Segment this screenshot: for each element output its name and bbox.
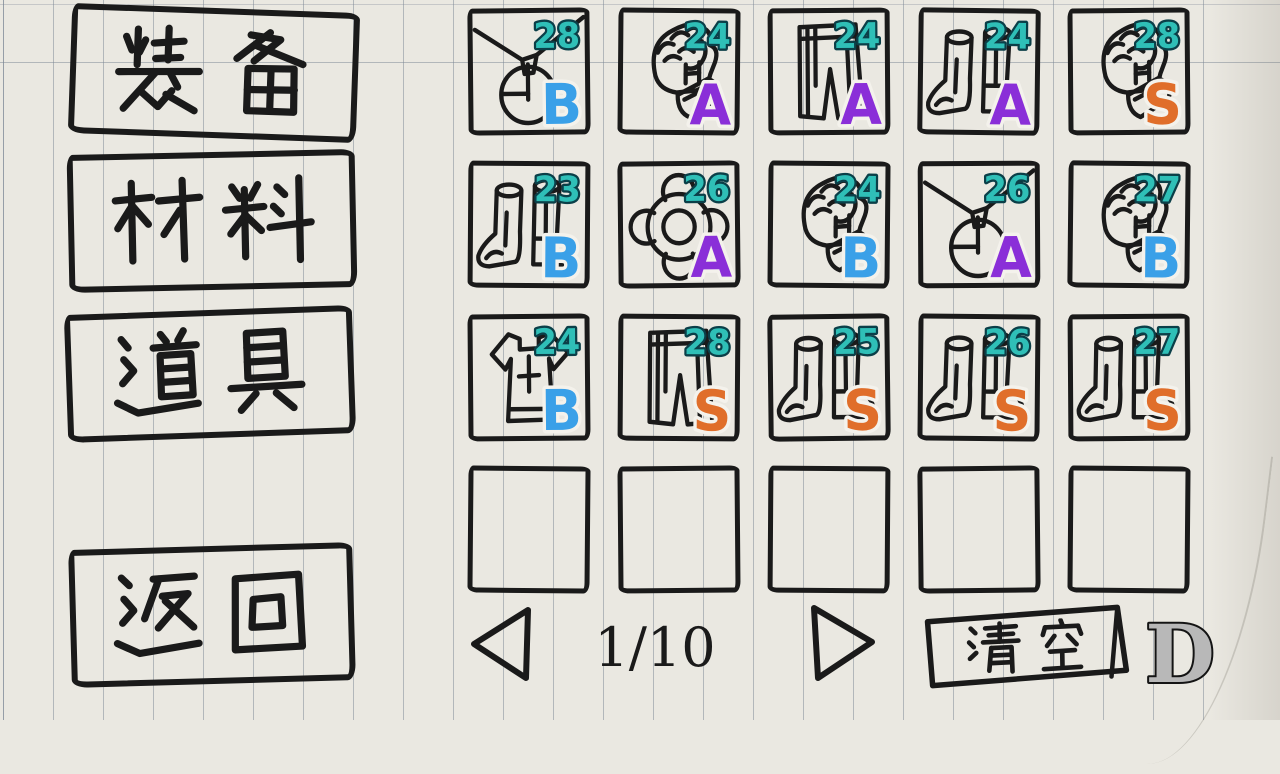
item-level: 28 [684,322,731,363]
hanzi-glyph [108,567,207,666]
item-level: 26 [683,169,730,210]
page-indicator: 1/10 [565,602,745,694]
hanzi-glyph [218,171,316,269]
hanzi-glyph [219,25,318,124]
right-triangle-icon [800,600,886,692]
item-grade: B [840,225,882,291]
item-level: 25 [833,322,880,363]
item-level: 24 [984,16,1031,57]
item-level: 27 [1133,322,1180,363]
inventory-slot-r1-c3[interactable]: 24A [768,8,891,136]
back-button[interactable] [68,542,356,688]
notebook-horizontal-guideline [0,4,1280,5]
hanzi-glyph [105,326,204,425]
item-grade: S [692,378,731,444]
prev-page-button[interactable] [462,600,544,692]
item-grade: A [689,72,732,138]
inventory-slot-r3-c3[interactable]: 25S [767,313,891,441]
item-grade: A [990,225,1032,291]
empty-slot-r4-c1[interactable] [467,465,590,593]
empty-slot-r4-c4[interactable] [917,465,1040,593]
inventory-slot-r3-c1[interactable]: 24B [467,313,590,441]
item-grade: A [690,224,733,290]
item-grade: B [541,71,583,137]
inventory-slot-r2-c2[interactable]: 26A [617,160,740,288]
watermark-letter-text: D [1146,607,1214,701]
item-level: 27 [1134,169,1181,210]
empty-slot-r4-c2[interactable] [617,465,740,593]
item-level: 26 [983,169,1030,210]
item-level: 26 [984,322,1031,363]
inventory-slot-r2-c4[interactable]: 26A [918,161,1041,289]
item-grade: B [541,378,583,444]
hanzi-glyph [218,564,317,663]
item-level: 24 [684,16,731,57]
inventory-slot-r1-c1[interactable]: 28B [467,7,590,135]
item-level: 24 [533,322,580,363]
item-level: 28 [533,16,580,57]
clear-button[interactable] [919,602,1135,694]
hanzi-glyph [215,322,314,421]
item-grade: S [1143,72,1182,138]
inventory-slot-r3-c5[interactable]: 27S [1068,314,1191,442]
next-page-button[interactable] [800,600,886,692]
item-level: 24 [833,16,880,57]
item-level: 24 [834,169,881,210]
item-grade: A [989,72,1032,138]
tab-equipment[interactable] [68,3,360,143]
item-level: 28 [1133,16,1180,57]
empty-slot-r4-c5[interactable] [1067,465,1190,593]
tab-items[interactable] [64,305,356,443]
inventory-slot-r1-c5[interactable]: 28S [1067,7,1190,135]
hanzi-glyph [109,21,208,120]
inventory-slot-r1-c2[interactable]: 24A [617,7,740,135]
clear-button-border [919,602,1135,694]
empty-slot-r4-c3[interactable] [768,466,891,594]
inventory-slot-r2-c3[interactable]: 24B [767,160,890,288]
inventory-slot-r1-c4[interactable]: 24A [917,7,1041,135]
left-triangle-icon [462,600,544,692]
hanzi-glyph [108,173,206,271]
inventory-slot-r3-c2[interactable]: 28S [618,314,741,442]
inventory-slot-r2-c1[interactable]: 23B [468,161,591,289]
inventory-slot-r3-c4[interactable]: 26S [917,313,1040,441]
item-grade: B [540,225,581,291]
item-grade: S [843,377,883,443]
item-grade: A [840,72,883,138]
watermark-letter: D [1146,606,1214,702]
inventory-slot-r2-c5[interactable]: 27B [1067,160,1190,288]
item-grade: B [1140,225,1182,291]
item-grade: S [992,378,1031,444]
tab-materials[interactable] [67,149,358,293]
item-grade: S [1143,378,1182,444]
item-level: 23 [534,169,581,210]
